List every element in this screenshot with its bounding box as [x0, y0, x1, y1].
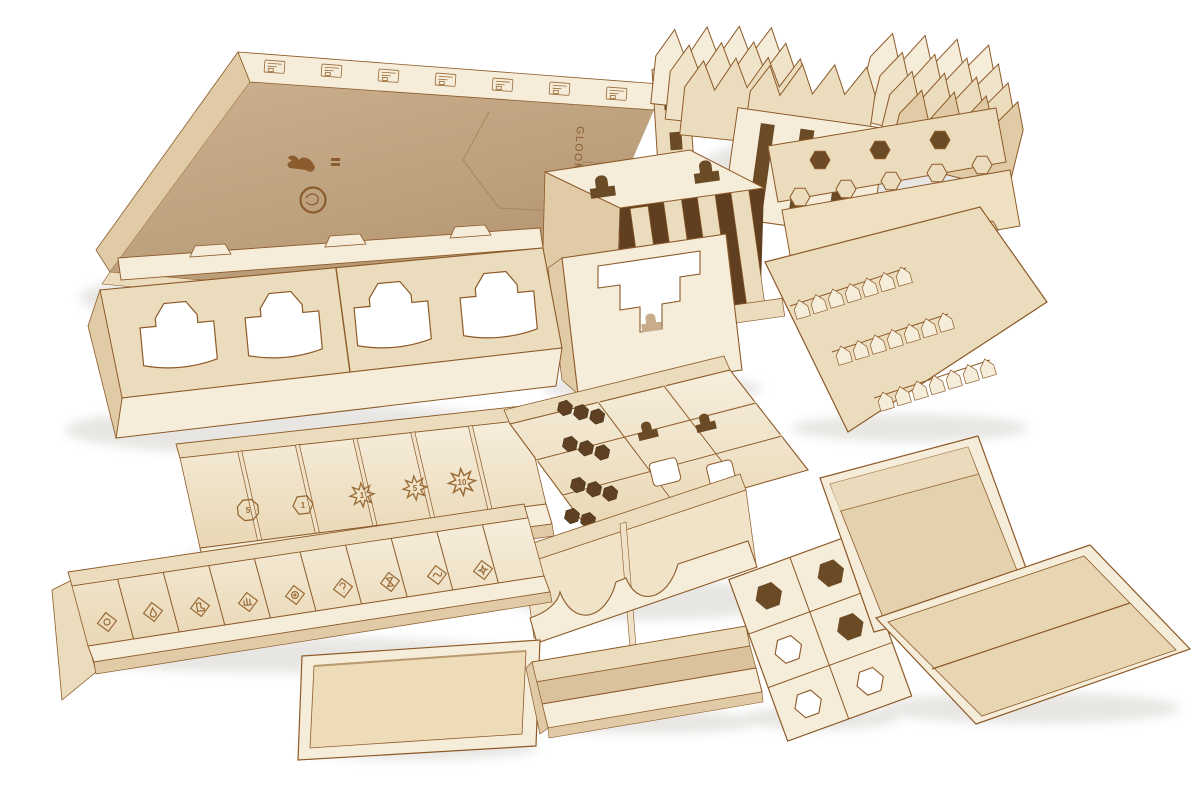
- photo-canvas: GLOOMHAVEN: [0, 0, 1200, 800]
- small-flat-tray: [298, 640, 540, 760]
- value-label: 5: [413, 484, 418, 493]
- value-label: 1: [301, 501, 306, 510]
- value-label: 5: [246, 506, 251, 515]
- value-label: 1: [360, 491, 365, 500]
- value-label: 10: [458, 478, 467, 487]
- organizer-photo: GLOOMHAVEN: [0, 0, 1200, 800]
